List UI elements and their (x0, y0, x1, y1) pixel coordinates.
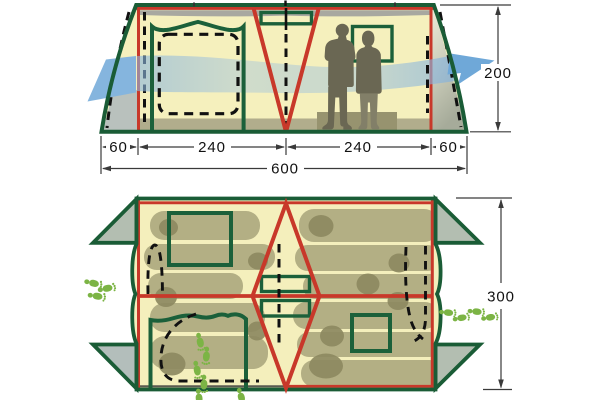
svg-text:600: 600 (271, 161, 299, 178)
svg-text:240: 240 (344, 139, 372, 156)
svg-text:60: 60 (109, 139, 128, 156)
svg-text:240: 240 (198, 139, 226, 156)
svg-text:60: 60 (439, 139, 458, 156)
svg-text:300: 300 (487, 289, 515, 306)
svg-text:200: 200 (484, 65, 512, 82)
